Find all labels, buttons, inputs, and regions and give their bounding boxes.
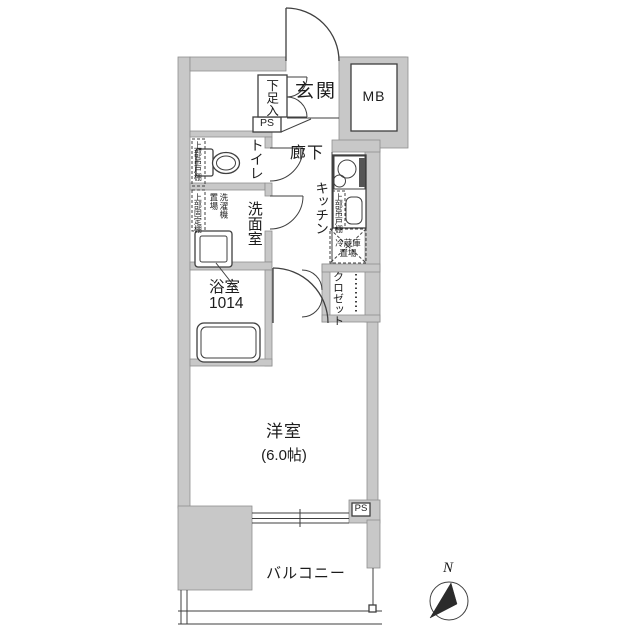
pipe-shaft-top-label: PS xyxy=(253,118,281,129)
closet-label: クロゼット xyxy=(331,271,343,326)
room-door xyxy=(273,268,328,323)
hallway-label: 廊下 xyxy=(290,146,324,163)
kitchen-label: キッチン xyxy=(313,181,327,235)
washroom-door xyxy=(270,196,303,229)
western-room-label: 洋室 xyxy=(234,423,334,441)
entrance-label: 玄関 xyxy=(295,82,337,102)
western-room-size: (6.0帖) xyxy=(234,448,334,464)
bathroom-size: 1014 xyxy=(209,295,243,312)
angled-wall-line xyxy=(281,119,311,132)
meter-box-label: MB xyxy=(351,89,397,104)
washer-space-label: 洗濯機 置場 xyxy=(209,193,228,219)
fridge-space-line1: 冷蔵庫 xyxy=(335,238,361,248)
bathroom-name: 浴室 xyxy=(209,279,240,296)
fridge-space-label: 冷蔵庫置場 xyxy=(330,238,366,258)
toilet-upper-cabinet-label: 上部吊戸棚 xyxy=(193,141,201,181)
pipe-shaft-bottom-label: PS xyxy=(352,504,370,514)
shoe-cabinet-label: 下足入 xyxy=(264,79,277,117)
fridge-space-line2: 置場 xyxy=(339,248,356,258)
toilet-label: トイレ xyxy=(249,138,264,180)
bathroom-label: 浴室1014 xyxy=(209,280,243,313)
compass-north-label: N xyxy=(443,561,453,577)
washing-machine-pan xyxy=(195,231,232,267)
floorplan-page: 玄関 下足入 MB PS トイレ 上部吊戸棚 廊下 キッチン 上部吊戸棚 上部固… xyxy=(0,0,640,639)
balcony-window xyxy=(252,509,349,527)
toilet-fixture xyxy=(196,149,240,176)
front-door xyxy=(286,8,339,61)
washer-space-line1: 洗濯機 xyxy=(219,193,228,219)
washroom-shelf-label: 上部固定棚 xyxy=(193,193,201,233)
kitchen-upper-cabinet-label: 上部吊戸棚 xyxy=(334,193,342,233)
bathtub xyxy=(197,323,260,362)
washroom-label: 洗面室 xyxy=(246,201,262,246)
washer-space-line2: 置場 xyxy=(209,193,218,219)
north-compass-icon xyxy=(430,582,468,620)
balcony-label: バルコニー xyxy=(260,566,352,582)
